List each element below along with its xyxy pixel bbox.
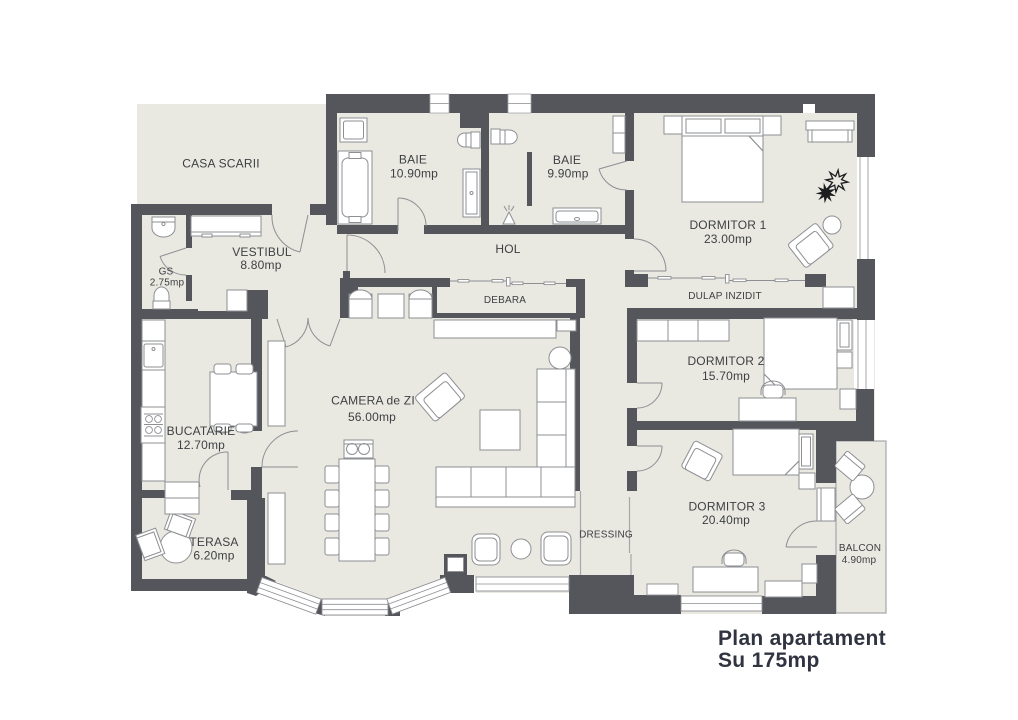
svg-text:2.75mp: 2.75mp bbox=[150, 278, 185, 289]
svg-text:6.20mp: 6.20mp bbox=[193, 549, 234, 563]
svg-text:DORMITOR 1: DORMITOR 1 bbox=[689, 218, 766, 232]
svg-text:HOL: HOL bbox=[495, 242, 520, 256]
svg-text:9.90mp: 9.90mp bbox=[547, 167, 588, 181]
svg-text:BAIE: BAIE bbox=[553, 153, 581, 167]
svg-text:20.40mp: 20.40mp bbox=[702, 513, 750, 527]
svg-text:DORMITOR 3: DORMITOR 3 bbox=[688, 500, 765, 514]
svg-text:23.00mp: 23.00mp bbox=[704, 232, 752, 246]
svg-text:Plan apartament: Plan apartament bbox=[718, 627, 886, 650]
svg-text:56.00mp: 56.00mp bbox=[348, 410, 396, 424]
svg-text:DRESSING: DRESSING bbox=[579, 530, 633, 541]
svg-text:GS: GS bbox=[159, 267, 174, 278]
svg-text:VESTIBUL: VESTIBUL bbox=[232, 245, 292, 259]
svg-text:BALCON: BALCON bbox=[839, 543, 881, 554]
svg-text:TERASA: TERASA bbox=[189, 535, 238, 549]
svg-text:CASA SCARII: CASA SCARII bbox=[182, 157, 260, 171]
svg-text:12.70mp: 12.70mp bbox=[177, 438, 225, 452]
svg-text:DEBARA: DEBARA bbox=[484, 295, 526, 306]
svg-text:BUCATARIE: BUCATARIE bbox=[167, 424, 236, 438]
svg-text:4.90mp: 4.90mp bbox=[842, 555, 877, 566]
svg-text:DORMITOR 2: DORMITOR 2 bbox=[687, 354, 764, 368]
svg-text:15.70mp: 15.70mp bbox=[702, 369, 750, 383]
svg-text:BAIE: BAIE bbox=[399, 153, 427, 167]
svg-text:Su 175mp: Su 175mp bbox=[718, 649, 820, 672]
svg-text:DULAP INZIDIT: DULAP INZIDIT bbox=[688, 291, 762, 302]
svg-text:10.90mp: 10.90mp bbox=[390, 167, 438, 181]
svg-text:CAMERA de ZI: CAMERA de ZI bbox=[331, 394, 415, 408]
svg-text:8.80mp: 8.80mp bbox=[240, 258, 281, 272]
